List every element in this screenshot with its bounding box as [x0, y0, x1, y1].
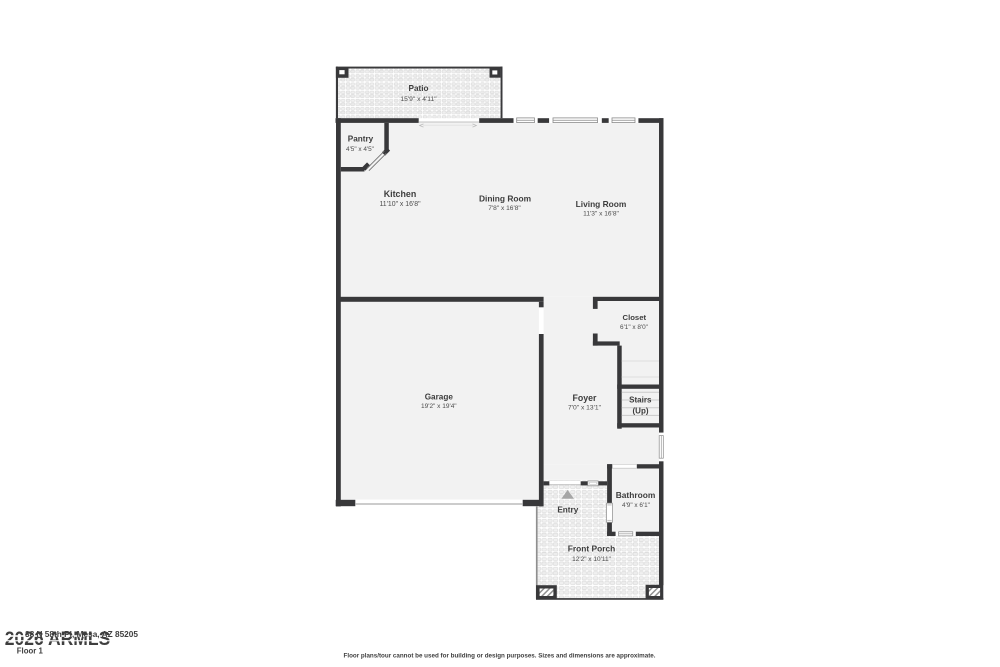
svg-text:Pantry: Pantry: [348, 135, 374, 144]
svg-text:Kitchen: Kitchen: [384, 189, 417, 199]
svg-text:Dining Room: Dining Room: [479, 193, 531, 203]
svg-text:4'5" x 4'5": 4'5" x 4'5": [346, 146, 374, 153]
svg-text:12'2" x 10'11": 12'2" x 10'11": [572, 556, 611, 563]
svg-text:Foyer: Foyer: [573, 393, 598, 403]
svg-text:Front Porch: Front Porch: [568, 543, 615, 553]
svg-text:38 N 58th Pl, Mesa, AZ 85205: 38 N 58th Pl, Mesa, AZ 85205: [25, 629, 138, 639]
svg-text:19'2" x 19'4": 19'2" x 19'4": [421, 403, 457, 410]
svg-text:4'9" x 6'1": 4'9" x 6'1": [622, 502, 650, 509]
svg-text:(Up): (Up): [633, 406, 649, 415]
svg-text:15'9" x 4'11": 15'9" x 4'11": [400, 96, 437, 103]
svg-text:7'8" x 16'8": 7'8" x 16'8": [488, 205, 521, 212]
svg-text:Patio: Patio: [408, 84, 428, 93]
svg-text:11'10" x 16'8": 11'10" x 16'8": [379, 201, 421, 208]
svg-text:7'0" x 13'1": 7'0" x 13'1": [568, 404, 602, 411]
svg-text:Stairs: Stairs: [629, 396, 652, 405]
svg-text:Living Room: Living Room: [576, 199, 627, 209]
svg-text:Bathroom: Bathroom: [616, 490, 656, 500]
svg-text:Garage: Garage: [425, 392, 454, 401]
svg-text:11'3" x 16'8": 11'3" x 16'8": [583, 211, 619, 218]
svg-text:Floor plans/tour cannot be use: Floor plans/tour cannot be used for buil…: [344, 652, 656, 659]
svg-text:Entry: Entry: [557, 505, 578, 514]
svg-text:Closet: Closet: [623, 313, 647, 322]
svg-text:6'1" x 8'0": 6'1" x 8'0": [620, 324, 648, 331]
svg-text:Floor 1: Floor 1: [17, 646, 44, 655]
